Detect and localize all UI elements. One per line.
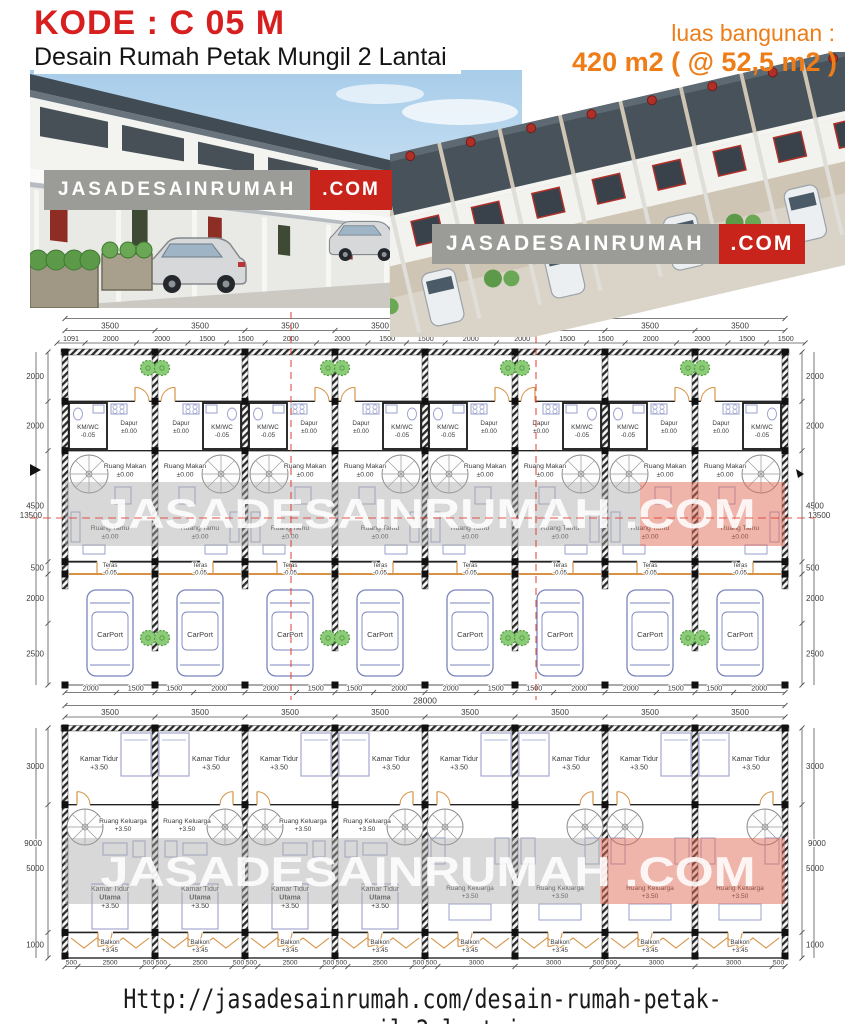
column — [152, 349, 159, 356]
column — [242, 447, 249, 454]
room-kmwc: KM/WC — [257, 424, 279, 431]
dim-label: 1500 — [346, 684, 362, 693]
column — [692, 398, 699, 405]
door-arc — [220, 792, 233, 805]
plan-watermark-text: JASADESAINRUMAH .COM — [101, 848, 756, 895]
tree — [155, 631, 170, 646]
column — [332, 801, 339, 808]
door-arc — [77, 792, 90, 805]
column — [242, 349, 249, 356]
dim-label: 1500 — [128, 684, 144, 693]
column — [152, 398, 159, 405]
column — [602, 929, 609, 936]
party-wall — [152, 349, 158, 589]
column — [332, 571, 339, 578]
tree — [141, 631, 156, 646]
tree — [515, 631, 530, 646]
room-level: ±0.00 — [713, 428, 729, 435]
bush — [136, 242, 152, 258]
tree — [695, 361, 710, 376]
dim-label: 2500 — [26, 650, 44, 659]
column — [602, 725, 609, 732]
plan-first-floor: 2800035003500350035003500350035003500109… — [20, 309, 831, 720]
room-ruang-keluarga: Ruang Keluarga — [163, 818, 211, 825]
party-wall — [782, 349, 788, 589]
dim-label: 500 — [336, 960, 348, 967]
bush — [102, 242, 118, 258]
dim-label: 3000 — [26, 762, 44, 771]
dim-label: 3500 — [461, 708, 479, 717]
room-level: +3.50 — [90, 765, 108, 772]
room-balkon: Balkon — [640, 939, 660, 946]
column — [62, 929, 69, 936]
furniture — [386, 405, 397, 413]
tree — [141, 361, 156, 376]
tree — [681, 631, 696, 646]
dim-label: 500 — [323, 960, 335, 967]
room-ruang-makan: Ruang Makan — [104, 463, 147, 470]
dim-label: 2500 — [282, 960, 297, 967]
door-arc — [400, 792, 413, 805]
room-level: -0.05 — [575, 432, 590, 439]
column — [692, 801, 699, 808]
dim-label: 1091 — [63, 334, 79, 343]
dim-label: 3000 — [546, 960, 561, 967]
room-balkon: Balkon — [460, 939, 480, 946]
room-ruang-makan: Ruang Makan — [524, 463, 567, 470]
room-level: ±0.00 — [297, 471, 314, 478]
door-arc — [701, 387, 715, 401]
room-balkon: Balkon — [730, 939, 750, 946]
furniture — [385, 545, 407, 554]
room-level: -0.05 — [643, 571, 657, 577]
stove — [653, 409, 657, 413]
room-kmwc: KM/WC — [751, 424, 773, 431]
column — [242, 801, 249, 808]
room-level: ±0.00 — [121, 428, 137, 435]
column — [242, 929, 249, 936]
dim-label: 500 — [31, 563, 45, 572]
room-teras: Teras — [283, 563, 298, 569]
dim-label: 2000 — [571, 684, 587, 693]
stove — [733, 409, 737, 413]
dim-label: 1000 — [806, 941, 824, 950]
column — [62, 398, 69, 405]
column — [242, 682, 249, 689]
furniture — [205, 545, 227, 554]
room-ruang-makan: Ruang Makan — [644, 463, 687, 470]
room-level: -0.05 — [261, 432, 276, 439]
bush — [30, 250, 48, 270]
column — [152, 571, 159, 578]
column — [332, 349, 339, 356]
room-dapur: Dapur — [480, 420, 497, 427]
room-level: +3.50 — [562, 765, 580, 772]
column — [782, 682, 789, 689]
window — [653, 159, 686, 190]
dim-label: 500 — [66, 960, 78, 967]
dim-label: 2000 — [334, 334, 350, 343]
room-level: +3.50 — [359, 826, 376, 833]
room-level: -0.05 — [81, 432, 96, 439]
column — [422, 571, 429, 578]
stove — [193, 405, 197, 409]
column — [62, 558, 69, 565]
dim-label: 1500 — [488, 684, 504, 693]
room-ruang-makan: Ruang Makan — [164, 463, 207, 470]
dim-label: 1500 — [199, 334, 215, 343]
column — [782, 349, 789, 356]
room-teras: Teras — [733, 563, 748, 569]
furniture — [565, 545, 587, 554]
room-balkon: Balkon — [190, 939, 210, 946]
bed — [481, 733, 511, 776]
dim-label: 2000 — [83, 684, 99, 693]
room-kamar-tidur: Kamar Tidur — [80, 756, 119, 763]
room-carport: CarPort — [187, 630, 214, 639]
column — [692, 953, 699, 960]
door-arc — [161, 387, 175, 401]
dim-label: 28000 — [413, 696, 437, 706]
dim-label: 2000 — [806, 422, 824, 431]
window — [592, 173, 625, 204]
stove — [293, 409, 297, 413]
column — [422, 929, 429, 936]
room-dapur: Dapur — [712, 420, 729, 427]
room-level: +3.45 — [732, 947, 748, 954]
column — [602, 682, 609, 689]
stove — [113, 405, 117, 409]
dim-label: 3500 — [281, 708, 299, 717]
stone-planter — [102, 254, 152, 290]
dim-overall-height: 13500 — [20, 511, 43, 520]
room-ruang-makan: Ruang Makan — [284, 463, 327, 470]
dim-label: 3500 — [191, 322, 209, 331]
bed — [519, 733, 549, 776]
column — [242, 953, 249, 960]
room-balkon: Balkon — [280, 939, 300, 946]
room-level: -0.05 — [283, 571, 297, 577]
room-level: +3.50 — [270, 765, 288, 772]
car-3d — [150, 238, 246, 293]
dim-label: 500 — [426, 960, 438, 967]
dim-label: 3000 — [469, 960, 484, 967]
room-balkon: Balkon — [550, 939, 570, 946]
party-wall — [242, 349, 248, 589]
party-wall — [62, 349, 68, 589]
stove — [546, 405, 550, 409]
column — [332, 725, 339, 732]
column — [782, 447, 789, 454]
dim-label: 3000 — [806, 762, 824, 771]
bed — [121, 733, 151, 776]
furniture — [443, 545, 465, 554]
column — [512, 929, 519, 936]
dim-label: 5000 — [806, 864, 824, 873]
furniture — [539, 904, 581, 920]
room-carport: CarPort — [547, 630, 574, 639]
dim-label: 500 — [233, 960, 245, 967]
dim-label: 3500 — [641, 708, 659, 717]
room-kmwc: KM/WC — [391, 424, 413, 431]
column — [422, 447, 429, 454]
tree — [335, 361, 350, 376]
dim-label: 500 — [806, 563, 820, 572]
bed — [159, 733, 189, 776]
dim-label: 2000 — [154, 334, 170, 343]
dim-overall-height: 9000 — [808, 839, 826, 848]
door-arc — [495, 387, 509, 401]
room-level: -0.05 — [395, 432, 410, 439]
dim-label: 2000 — [103, 334, 119, 343]
party-wall — [422, 349, 428, 589]
dim-label: 2000 — [26, 594, 44, 603]
door-arc — [617, 792, 630, 805]
column — [62, 953, 69, 960]
room-level: +3.50 — [742, 765, 760, 772]
room-level: +3.45 — [372, 947, 388, 954]
room-teras: Teras — [103, 563, 118, 569]
dim-label: 3500 — [731, 708, 749, 717]
stove — [113, 409, 117, 413]
dim-label: 3500 — [191, 708, 209, 717]
room-level: +3.50 — [382, 765, 400, 772]
column — [512, 725, 519, 732]
dim-label: 2000 — [263, 684, 279, 693]
column — [692, 571, 699, 578]
dim-label: 2000 — [623, 684, 639, 693]
dim-label: 2500 — [192, 960, 207, 967]
room-dapur: Dapur — [172, 420, 189, 427]
room-level: +3.50 — [371, 903, 389, 910]
room-kamar-tidur: Kamar Tidur — [260, 756, 299, 763]
column — [782, 725, 789, 732]
stove — [293, 405, 297, 409]
column — [62, 801, 69, 808]
room-level: ±0.00 — [481, 428, 497, 435]
watermark-bar: JASADESAINRUMAH .COM — [432, 224, 805, 264]
dim-label: 3500 — [371, 322, 389, 331]
furniture — [633, 405, 644, 413]
room-level: +3.45 — [642, 947, 658, 954]
column — [602, 571, 609, 578]
room-level: +3.45 — [552, 947, 568, 954]
tree — [321, 361, 336, 376]
column — [422, 682, 429, 689]
dim-label: 3000 — [649, 960, 664, 967]
party-wall — [692, 349, 698, 589]
kode-title: KODE : C 05 M — [34, 4, 285, 43]
room-level: -0.05 — [553, 571, 567, 577]
column — [62, 447, 69, 454]
column — [782, 929, 789, 936]
column — [152, 801, 159, 808]
dim-label: 1500 — [166, 684, 182, 693]
room-ruang-makan: Ruang Makan — [464, 463, 507, 470]
area-value: 420 m2 ( @ 52,5 m2 ) — [572, 47, 837, 78]
tree — [155, 361, 170, 376]
column — [782, 398, 789, 405]
room-kmwc: KM/WC — [571, 424, 593, 431]
column — [332, 953, 339, 960]
column — [512, 682, 519, 689]
stove — [660, 405, 664, 409]
room-ruang-makan: Ruang Makan — [704, 463, 747, 470]
room-kamar-tidur: Kamar Tidur — [440, 756, 479, 763]
room-level: ±0.00 — [657, 471, 674, 478]
room-dapur: Dapur — [532, 420, 549, 427]
room-ruang-makan: Ruang Makan — [344, 463, 387, 470]
column — [692, 558, 699, 565]
toilet — [614, 408, 623, 420]
party-wall — [332, 349, 338, 589]
column — [602, 447, 609, 454]
watermark-name: JASADESAINRUMAH — [44, 170, 310, 210]
furniture — [746, 405, 757, 413]
room-kmwc: KM/WC — [77, 424, 99, 431]
dim-label: 3500 — [551, 708, 569, 717]
poster-page: { "header": { "kode": "KODE : C 05 M", "… — [0, 0, 845, 1024]
room-level: -0.05 — [193, 571, 207, 577]
dim-overall-height: 9000 — [24, 839, 42, 848]
room-kamar-tidur: Kamar Tidur — [552, 756, 591, 763]
stove — [186, 409, 190, 413]
room-carport: CarPort — [97, 630, 124, 639]
column — [242, 558, 249, 565]
room-teras: Teras — [463, 563, 478, 569]
column — [62, 725, 69, 732]
window — [773, 132, 806, 163]
watermark-tld: .COM — [719, 224, 806, 264]
party-wall — [602, 349, 608, 589]
stove — [660, 409, 664, 413]
dim-label: 500 — [773, 960, 785, 967]
room-level: ±0.00 — [357, 471, 374, 478]
room-level: -0.05 — [463, 571, 477, 577]
column — [152, 953, 159, 960]
toilet — [254, 408, 263, 420]
column — [512, 953, 519, 960]
stove — [300, 405, 304, 409]
room-level: +3.45 — [282, 947, 298, 954]
column — [602, 398, 609, 405]
column — [512, 801, 519, 808]
column — [782, 558, 789, 565]
column — [692, 349, 699, 356]
stove — [366, 409, 370, 413]
column — [512, 398, 519, 405]
room-level: -0.05 — [755, 432, 770, 439]
column — [422, 349, 429, 356]
stove — [193, 409, 197, 413]
column — [332, 447, 339, 454]
room-kamar-tidur: Kamar Tidur — [732, 756, 771, 763]
aerial-view-photo — [390, 52, 845, 337]
door-arc — [580, 792, 593, 805]
room-teras: Teras — [553, 563, 568, 569]
room-level: ±0.00 — [717, 471, 734, 478]
room-dapur: Dapur — [660, 420, 677, 427]
tree — [501, 631, 516, 646]
column — [62, 349, 69, 356]
stove — [553, 405, 557, 409]
dim-label: 2000 — [751, 684, 767, 693]
room-dapur: Dapur — [120, 420, 137, 427]
column — [692, 929, 699, 936]
column — [512, 447, 519, 454]
dim-label: 2500 — [372, 960, 387, 967]
bush — [46, 250, 66, 270]
room-carport: CarPort — [637, 630, 664, 639]
column — [602, 953, 609, 960]
dim-label: 500 — [143, 960, 155, 967]
door-arc — [675, 387, 689, 401]
stove — [553, 409, 557, 413]
dim-label: 2000 — [26, 372, 44, 381]
plant-box — [132, 207, 148, 247]
toilet — [408, 408, 417, 420]
dim-label: 3500 — [101, 708, 119, 717]
dim-label: 1500 — [668, 684, 684, 693]
plant-box — [278, 225, 290, 256]
room-kamar-tidur: Kamar Tidur — [372, 756, 411, 763]
column — [152, 558, 159, 565]
room-level: +3.50 — [101, 903, 119, 910]
stove — [120, 409, 124, 413]
room-level: ±0.00 — [117, 471, 134, 478]
column — [152, 725, 159, 732]
room-level: -0.05 — [621, 432, 636, 439]
dim-overall-height: 13500 — [808, 511, 831, 520]
room-ruang-keluarga: Ruang Keluarga — [279, 818, 327, 825]
column — [512, 349, 519, 356]
column — [602, 349, 609, 356]
furniture — [263, 545, 285, 554]
room-level: +3.50 — [450, 765, 468, 772]
column — [422, 953, 429, 960]
cursor-artifact — [30, 464, 41, 476]
plan-second-floor: Kamar Tidur+3.50Ruang Keluarga+3.50Kamar… — [24, 725, 826, 970]
door-arc — [315, 387, 329, 401]
dim-label: 2000 — [26, 422, 44, 431]
column — [422, 558, 429, 565]
column — [782, 953, 789, 960]
cursor-artifact — [796, 469, 804, 478]
toilet — [228, 408, 237, 420]
window — [532, 187, 565, 218]
dim-label: 2000 — [443, 684, 459, 693]
dim-label: 1500 — [308, 684, 324, 693]
watermark-tld: .COM — [310, 170, 392, 210]
stove — [120, 405, 124, 409]
stove — [480, 409, 484, 413]
dim-label: 500 — [246, 960, 258, 967]
stove — [480, 405, 484, 409]
watermark-name: JASADESAINRUMAH — [432, 224, 719, 264]
room-kmwc: KM/WC — [617, 424, 639, 431]
room-dapur: Dapur — [300, 420, 317, 427]
column — [422, 725, 429, 732]
furniture — [206, 405, 217, 413]
room-kamar-tidur: Kamar Tidur — [620, 756, 659, 763]
bed — [661, 733, 691, 776]
room-level: +3.50 — [202, 765, 220, 772]
furniture — [83, 545, 105, 554]
window — [713, 145, 746, 176]
column — [152, 682, 159, 689]
stove — [373, 409, 377, 413]
dim-label: 3000 — [726, 960, 741, 967]
